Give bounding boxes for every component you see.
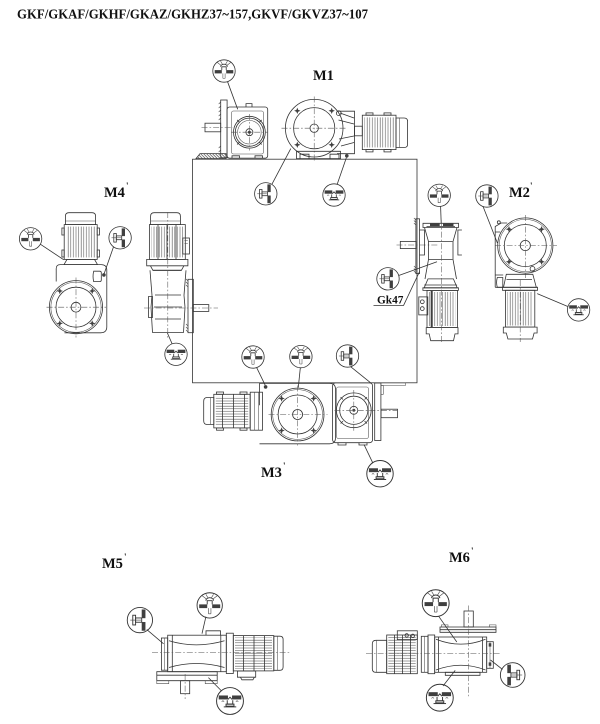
svg-text:M6: M6 [449, 550, 470, 566]
svg-text:M3: M3 [261, 465, 282, 481]
svg-text:': ' [530, 181, 533, 191]
svg-text:M1: M1 [313, 68, 334, 84]
svg-text:Gk47: Gk47 [377, 295, 404, 307]
svg-text:M5: M5 [102, 556, 123, 572]
svg-text:': ' [471, 546, 474, 556]
svg-text:': ' [126, 181, 129, 191]
svg-text:GKF/GKAF/GKHF/GKAZ/GKHZ37~157,: GKF/GKAF/GKHF/GKAZ/GKHZ37~157,GKVF/GKVZ3… [17, 7, 368, 22]
svg-text:': ' [124, 552, 127, 562]
svg-text:M2: M2 [509, 185, 530, 201]
svg-text:M4: M4 [104, 185, 125, 201]
svg-text:': ' [283, 461, 286, 471]
